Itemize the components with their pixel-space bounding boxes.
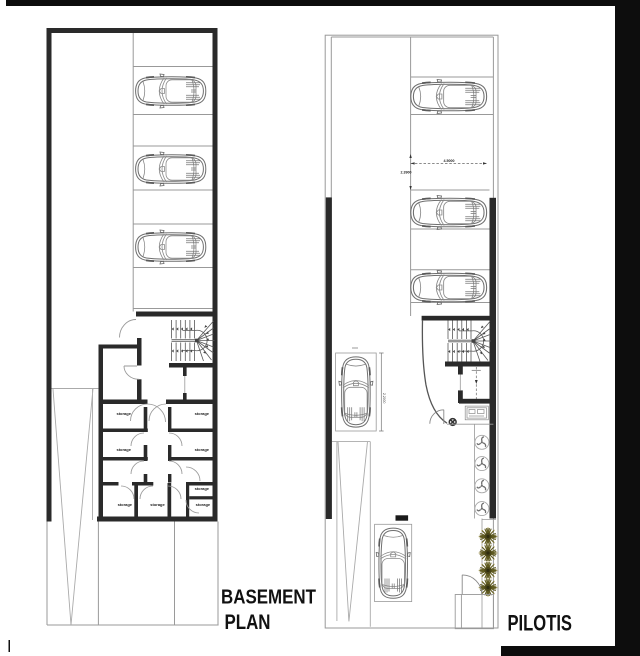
- svg-text:storage: storage: [116, 447, 131, 452]
- svg-text:2.2000: 2.2000: [382, 393, 386, 403]
- svg-text:storage: storage: [195, 411, 210, 416]
- svg-text:storage: storage: [195, 447, 210, 452]
- svg-text:BASEMENT: BASEMENT: [221, 587, 316, 609]
- svg-text:2.3900: 2.3900: [401, 171, 412, 175]
- svg-text:storage: storage: [116, 411, 131, 416]
- svg-text:PLAN: PLAN: [225, 611, 271, 634]
- svg-text:storage: storage: [118, 502, 133, 507]
- svg-text:storage: storage: [150, 502, 165, 507]
- svg-text:4.5000: 4.5000: [444, 159, 455, 163]
- svg-text:PILOTIS: PILOTIS: [508, 611, 573, 636]
- svg-text:storage: storage: [195, 486, 210, 491]
- svg-text:storage: storage: [196, 502, 211, 507]
